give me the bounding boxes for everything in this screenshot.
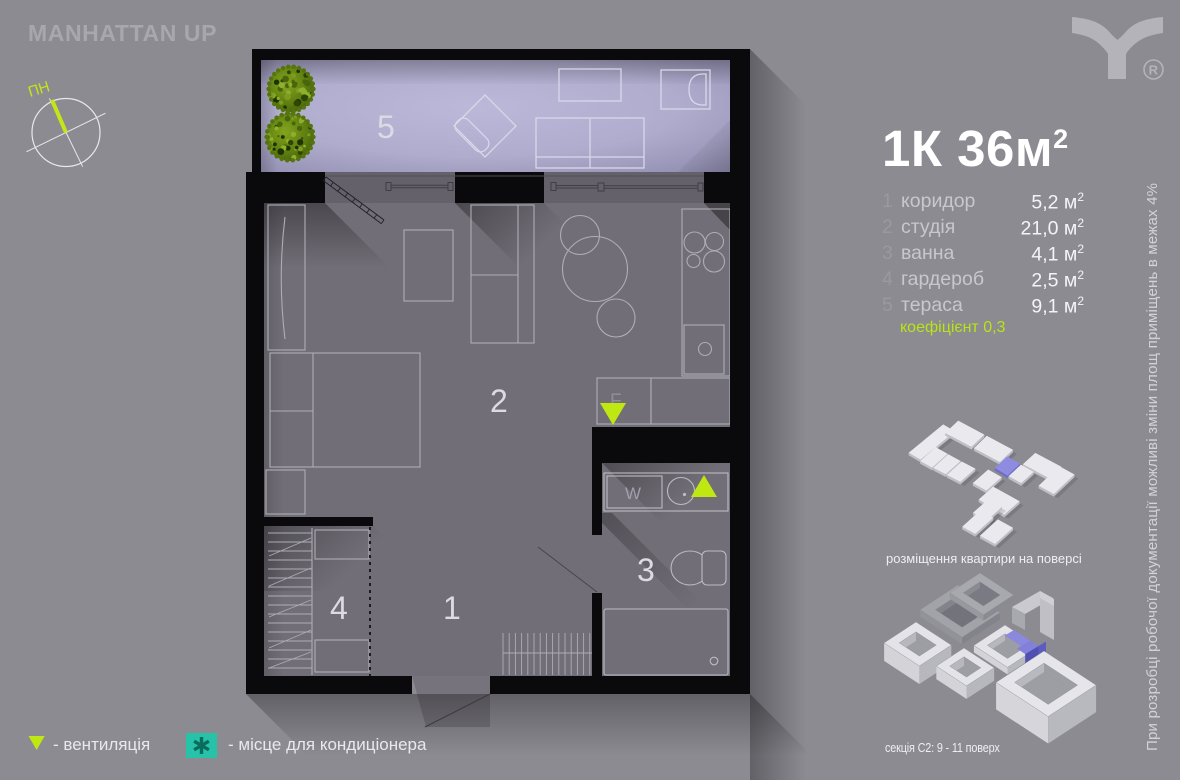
svg-text:5: 5 bbox=[377, 109, 395, 145]
svg-text:ПН: ПН bbox=[26, 78, 52, 101]
svg-text:1: 1 bbox=[443, 590, 461, 626]
svg-text:W: W bbox=[625, 484, 641, 503]
svg-text:3: 3 bbox=[637, 552, 655, 588]
svg-text:2: 2 bbox=[490, 383, 508, 419]
svg-text:4: 4 bbox=[330, 590, 348, 626]
svg-text:R: R bbox=[1149, 63, 1159, 78]
